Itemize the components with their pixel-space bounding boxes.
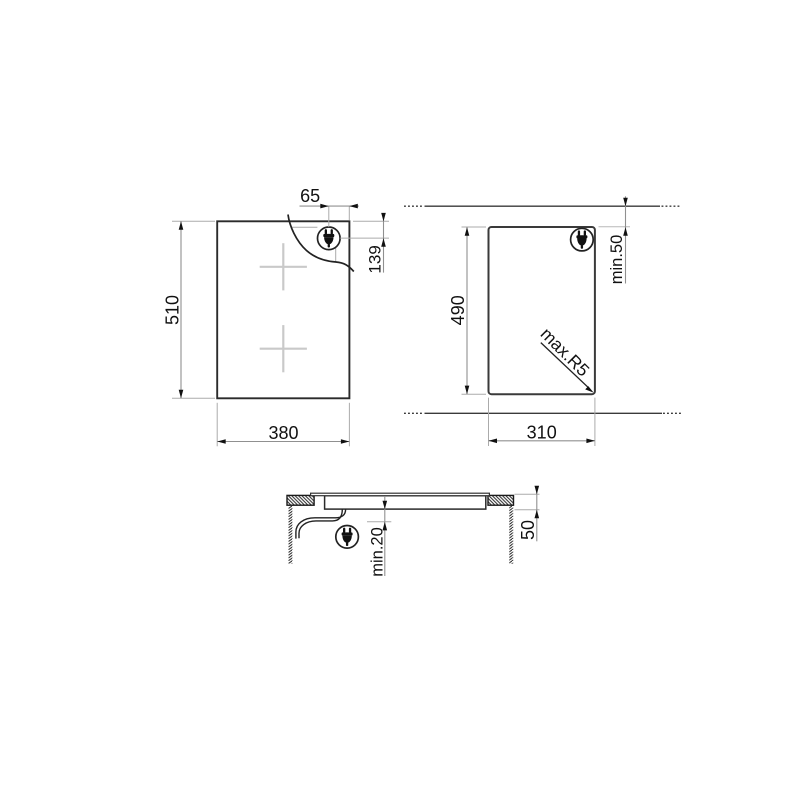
svg-text:490: 490 <box>448 295 468 325</box>
svg-text:380: 380 <box>268 423 298 443</box>
svg-text:139: 139 <box>365 245 384 273</box>
svg-text:min.20: min.20 <box>368 527 386 577</box>
svg-text:310: 310 <box>527 423 557 443</box>
svg-text:min.50: min.50 <box>608 235 626 285</box>
svg-text:50: 50 <box>518 520 538 540</box>
svg-text:65: 65 <box>300 186 320 206</box>
svg-text:510: 510 <box>163 295 183 325</box>
